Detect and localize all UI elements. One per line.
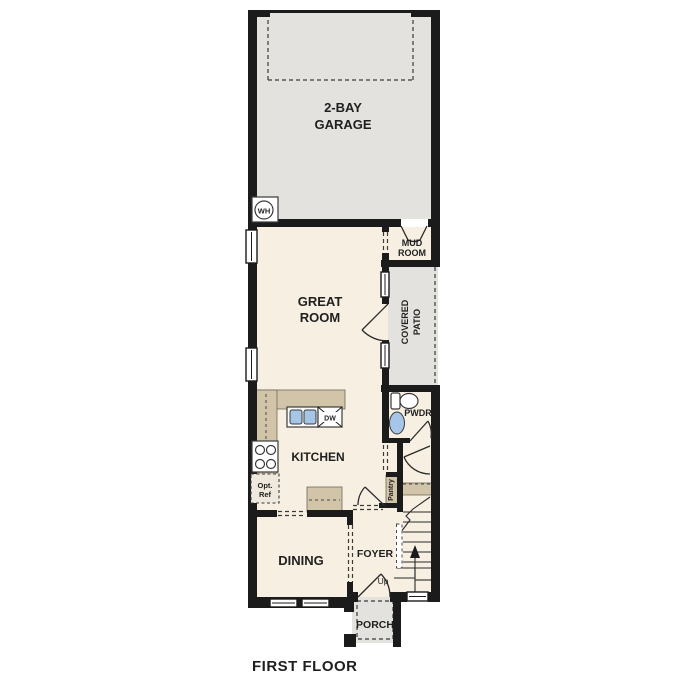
stairs-up-label: Up bbox=[378, 576, 389, 586]
kitchen-label: KITCHEN bbox=[291, 450, 344, 464]
floor-plan-drawing: 2-BAY GARAGE WH MUD ROOM GREAT ROOM COVE… bbox=[0, 0, 687, 687]
great-room-label-line1: GREAT bbox=[298, 294, 343, 309]
opt-ref-label-line1: Opt. bbox=[258, 481, 273, 490]
mud-room-label-line2: ROOM bbox=[398, 248, 426, 258]
powder-sink-fixture bbox=[390, 412, 405, 434]
range-fixture bbox=[252, 441, 278, 472]
kitchen-sink-fixture bbox=[287, 407, 318, 427]
garage-floor bbox=[257, 13, 431, 219]
dishwasher-label: DW bbox=[324, 416, 336, 423]
dining-label: DINING bbox=[278, 553, 324, 568]
great-room-label-line2: ROOM bbox=[300, 310, 340, 325]
powder-room-label: PWDR bbox=[404, 408, 432, 418]
plan-caption: FIRST FLOOR bbox=[252, 658, 358, 675]
covered-patio-label-line2: PATIO bbox=[412, 309, 422, 335]
garage-label-line2: GARAGE bbox=[314, 117, 371, 132]
coat-closet-shelf bbox=[402, 483, 432, 495]
porch-label: PORCH bbox=[356, 619, 394, 631]
covered-patio-label-line1: COVERED bbox=[400, 299, 410, 344]
garage-label-line1: 2-BAY bbox=[324, 100, 362, 115]
opt-ref-label-line2: Ref bbox=[259, 490, 272, 499]
kitchen-counter-left bbox=[256, 390, 277, 443]
water-heater-label: WH bbox=[258, 207, 271, 216]
pantry-label: Pantry bbox=[388, 479, 395, 501]
kitchen-island bbox=[307, 487, 342, 512]
foyer-label: FOYER bbox=[357, 548, 394, 560]
toilet-fixture bbox=[391, 393, 418, 409]
floor-plan-page: 2-BAY GARAGE WH MUD ROOM GREAT ROOM COVE… bbox=[0, 0, 687, 687]
mud-room-label-line1: MUD bbox=[402, 238, 423, 248]
stair-railing bbox=[397, 524, 403, 568]
